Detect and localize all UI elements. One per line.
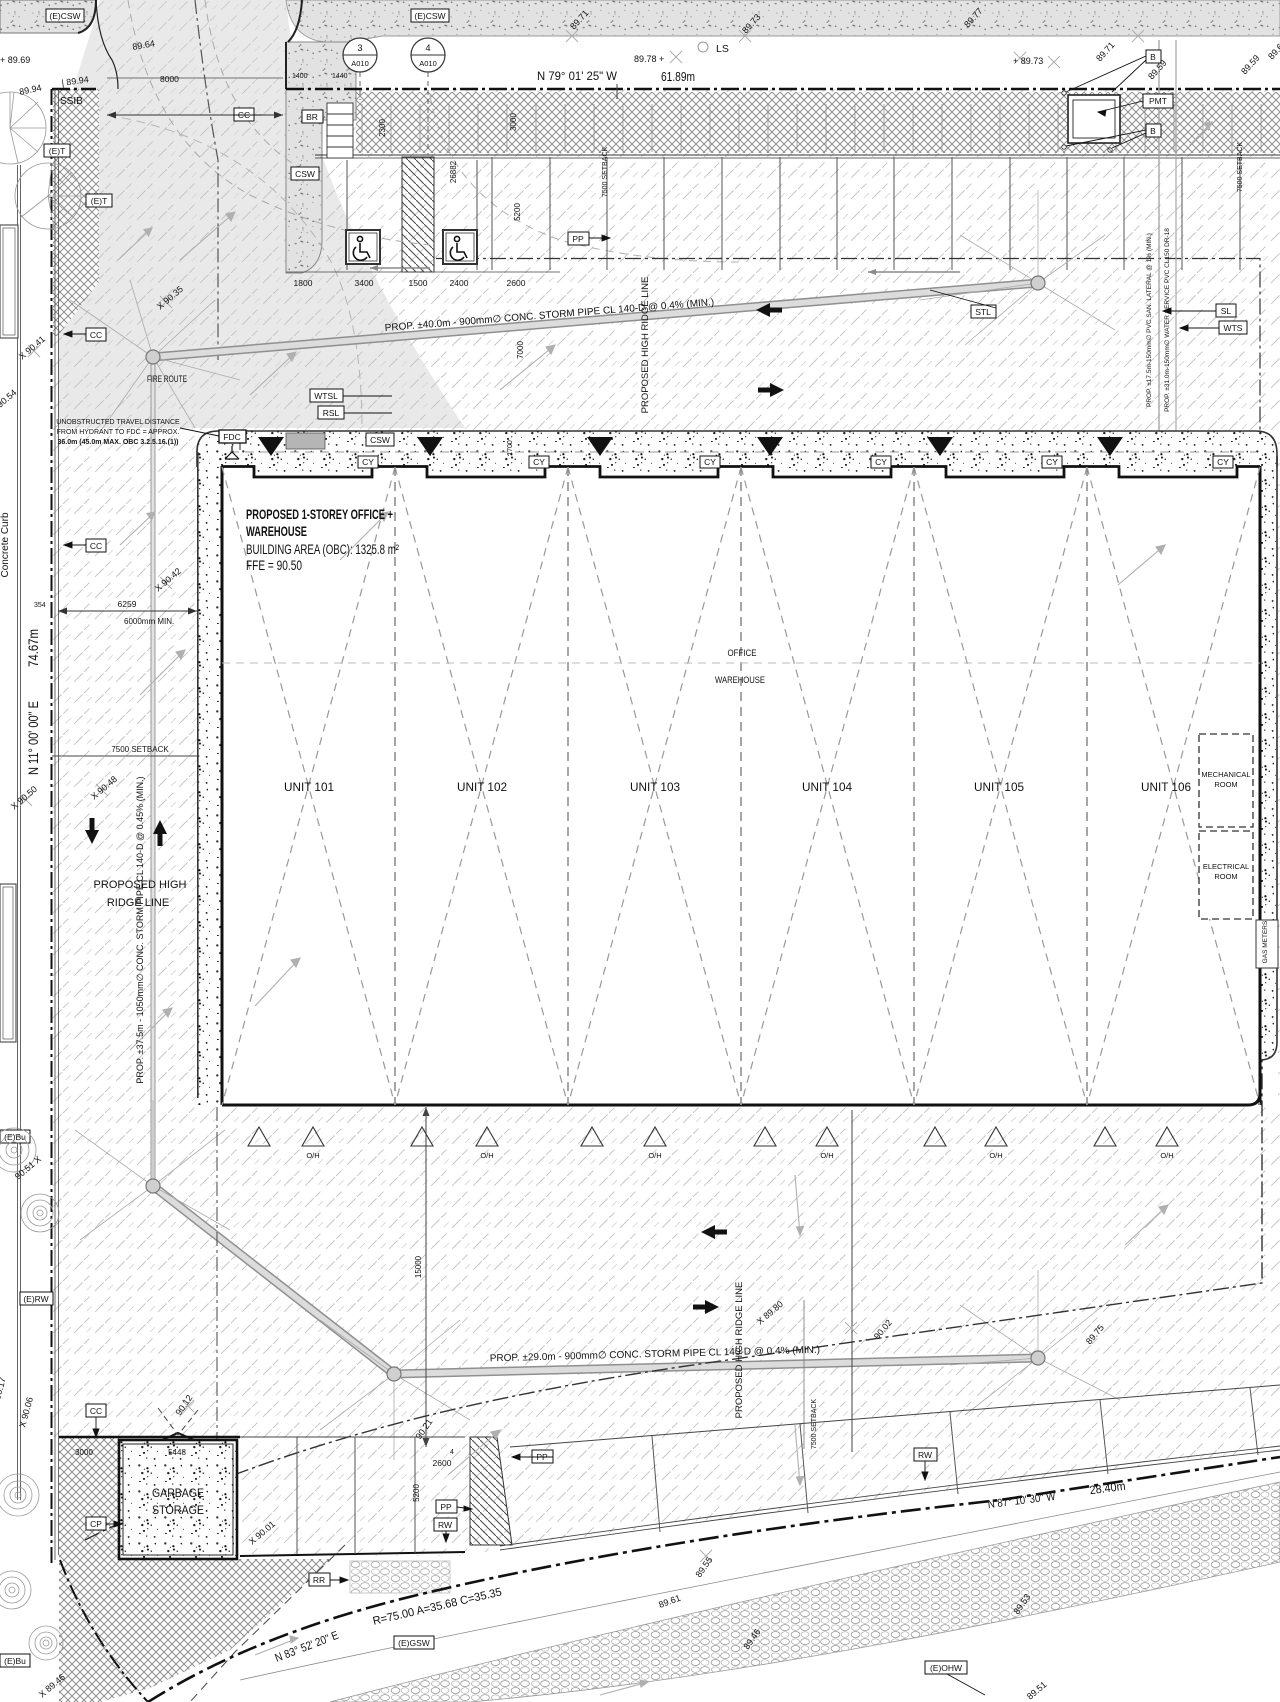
svg-text:1440: 1440 bbox=[332, 73, 348, 80]
svg-text:UNOBSTRUCTED TRAVEL DISTANCE: UNOBSTRUCTED TRAVEL DISTANCE bbox=[56, 419, 180, 426]
svg-text:STORAGE: STORAGE bbox=[152, 1503, 204, 1517]
svg-text:N 11° 00' 00" E: N 11° 00' 00" E bbox=[26, 701, 41, 775]
svg-text:CY: CY bbox=[875, 457, 887, 467]
svg-text:CSW: CSW bbox=[370, 435, 390, 445]
svg-text:3000: 3000 bbox=[509, 113, 518, 131]
svg-text:6259: 6259 bbox=[118, 599, 137, 609]
svg-text:CY: CY bbox=[1046, 457, 1058, 467]
svg-text:5200: 5200 bbox=[513, 203, 522, 221]
svg-text:3: 3 bbox=[357, 43, 362, 53]
svg-text:(E)T: (E)T bbox=[91, 196, 108, 206]
svg-text:RSL: RSL bbox=[323, 408, 340, 418]
svg-text:7500 SETBACK: 7500 SETBACK bbox=[811, 1399, 818, 1450]
svg-text:PROPOSED HIGH: PROPOSED HIGH bbox=[94, 879, 187, 891]
svg-text:SSIB: SSIB bbox=[60, 96, 83, 107]
svg-text:FROM HYDRANT TO FDC = APPROX.: FROM HYDRANT TO FDC = APPROX. bbox=[57, 429, 180, 436]
svg-text:26882: 26882 bbox=[449, 160, 458, 183]
svg-text:(E)T: (E)T bbox=[49, 146, 66, 156]
svg-text:1700: 1700 bbox=[507, 440, 514, 456]
svg-text:15000: 15000 bbox=[414, 1255, 423, 1278]
svg-text:B: B bbox=[1150, 52, 1156, 62]
svg-text:PROP. ±31.0m-150mm∅ WATER SER: PROP. ±31.0m-150mm∅ WATER SERVICE PVC CL… bbox=[1164, 228, 1171, 412]
svg-text:BUILDING AREA (OBC): 1325.8 m²: BUILDING AREA (OBC): 1325.8 m² bbox=[246, 542, 399, 557]
svg-text:6000mm MIN.: 6000mm MIN. bbox=[124, 617, 174, 626]
svg-text:7500 SETBACK: 7500 SETBACK bbox=[602, 147, 609, 198]
svg-text:STL: STL bbox=[975, 307, 991, 317]
svg-text:CC: CC bbox=[90, 1406, 102, 1416]
svg-text:CP: CP bbox=[90, 1519, 102, 1529]
svg-text:CY: CY bbox=[362, 457, 374, 467]
svg-text:A010: A010 bbox=[351, 59, 369, 68]
svg-text:RW: RW bbox=[438, 1520, 452, 1530]
svg-text:O/H: O/H bbox=[989, 1151, 1002, 1160]
svg-text:WAREHOUSE: WAREHOUSE bbox=[246, 523, 307, 539]
svg-text:CC: CC bbox=[90, 541, 102, 551]
svg-text:PMT: PMT bbox=[1149, 96, 1167, 106]
svg-text:1800: 1800 bbox=[294, 278, 313, 288]
svg-text:2600: 2600 bbox=[433, 1458, 452, 1468]
svg-text:O/H: O/H bbox=[480, 1151, 493, 1160]
svg-text:UNIT 101: UNIT 101 bbox=[284, 780, 334, 794]
svg-text:FIRE ROUTE: FIRE ROUTE bbox=[147, 374, 187, 384]
svg-text:5200: 5200 bbox=[412, 1484, 421, 1502]
svg-text:3400: 3400 bbox=[355, 278, 374, 288]
svg-text:(E)GSW: (E)GSW bbox=[398, 1638, 430, 1648]
svg-text:CY: CY bbox=[704, 457, 716, 467]
svg-text:7500 SETBACK: 7500 SETBACK bbox=[1237, 142, 1244, 193]
svg-text:CY: CY bbox=[1217, 457, 1229, 467]
svg-text:(E)CSW: (E)CSW bbox=[414, 11, 445, 21]
svg-text:OFFICE: OFFICE bbox=[728, 648, 757, 659]
svg-text:PP: PP bbox=[572, 234, 584, 244]
svg-text:5448: 5448 bbox=[168, 1448, 186, 1457]
svg-text:ELECTRICAL: ELECTRICAL bbox=[1203, 862, 1249, 871]
svg-text:UNIT 102: UNIT 102 bbox=[457, 780, 507, 794]
svg-text:(E)Bu: (E)Bu bbox=[4, 1132, 26, 1142]
svg-text:ROOM: ROOM bbox=[1214, 872, 1237, 881]
svg-text:PP: PP bbox=[440, 1502, 452, 1512]
svg-text:GAS METERS: GAS METERS bbox=[1262, 920, 1269, 963]
svg-text:O/H: O/H bbox=[648, 1151, 661, 1160]
svg-text:(E)CSW: (E)CSW bbox=[49, 11, 80, 21]
svg-text:UNIT 103: UNIT 103 bbox=[630, 780, 680, 794]
svg-text:CY: CY bbox=[533, 457, 545, 467]
svg-text:PROPOSED HIGH RIDGE LINE: PROPOSED HIGH RIDGE LINE bbox=[640, 277, 651, 414]
svg-text:CC: CC bbox=[90, 330, 102, 340]
svg-text:WAREHOUSE: WAREHOUSE bbox=[715, 675, 765, 686]
svg-text:CSW: CSW bbox=[295, 169, 315, 179]
svg-text:BR: BR bbox=[306, 112, 318, 122]
svg-text:RR: RR bbox=[313, 1575, 325, 1585]
svg-text:WTSL: WTSL bbox=[314, 391, 338, 401]
svg-text:354: 354 bbox=[34, 602, 46, 609]
svg-text:SL: SL bbox=[1221, 306, 1232, 316]
svg-text:89.78 +: 89.78 + bbox=[634, 54, 664, 64]
svg-text:4: 4 bbox=[425, 43, 430, 53]
svg-text:1400: 1400 bbox=[292, 73, 308, 80]
svg-text:1500: 1500 bbox=[409, 278, 428, 288]
svg-text:RW: RW bbox=[918, 1450, 932, 1460]
svg-text:61.89m: 61.89m bbox=[661, 70, 695, 84]
svg-text:PROPOSED 1-STOREY OFFICE +: PROPOSED 1-STOREY OFFICE + bbox=[246, 506, 393, 522]
svg-text:7000: 7000 bbox=[516, 341, 525, 359]
svg-text:PROP. ±17.5m-150mm∅ PVC SAN.: PROP. ±17.5m-150mm∅ PVC SAN. LATERAL @ 1… bbox=[1146, 233, 1153, 407]
svg-text:2400: 2400 bbox=[450, 278, 469, 288]
svg-text:74.67m: 74.67m bbox=[26, 629, 41, 667]
svg-text:O/H: O/H bbox=[306, 1151, 319, 1160]
svg-text:RIDGE LINE: RIDGE LINE bbox=[107, 897, 169, 909]
svg-text:N 79° 01' 25" W: N 79° 01' 25" W bbox=[537, 69, 618, 83]
svg-text:(E)Bu: (E)Bu bbox=[4, 1656, 26, 1666]
svg-text:4: 4 bbox=[450, 1449, 454, 1456]
svg-text:PROP. ±37.5m - 1050mm∅ CONC.: PROP. ±37.5m - 1050mm∅ CONC. STORM PIPE … bbox=[135, 776, 145, 1083]
svg-text:2300: 2300 bbox=[378, 119, 387, 137]
svg-text:36.0m (45.0m MAX. OBC 3.2.5.16: 36.0m (45.0m MAX. OBC 3.2.5.16.(1)) bbox=[58, 439, 179, 446]
svg-text:A010: A010 bbox=[419, 59, 437, 68]
svg-text:MECHANICAL: MECHANICAL bbox=[1201, 770, 1250, 779]
svg-text:PROPOSED HIGH RIDGE LINE: PROPOSED HIGH RIDGE LINE bbox=[734, 1282, 745, 1419]
svg-text:3000: 3000 bbox=[75, 1448, 93, 1457]
svg-text:+ 89.69: + 89.69 bbox=[0, 55, 30, 65]
svg-text:+ 89.73: + 89.73 bbox=[1013, 56, 1043, 66]
svg-text:B: B bbox=[1150, 126, 1156, 136]
svg-text:UNIT 105: UNIT 105 bbox=[974, 780, 1024, 794]
svg-text:FFE = 90.50: FFE = 90.50 bbox=[246, 558, 302, 573]
svg-text:7500 SETBACK: 7500 SETBACK bbox=[111, 745, 169, 754]
svg-text:GARBAGE: GARBAGE bbox=[152, 1486, 204, 1500]
svg-text:(E)OHW: (E)OHW bbox=[930, 1663, 962, 1673]
svg-text:Concrete Curb: Concrete Curb bbox=[0, 512, 11, 577]
svg-text:O/H: O/H bbox=[820, 1151, 833, 1160]
svg-text:8000: 8000 bbox=[160, 74, 179, 84]
svg-text:WTS: WTS bbox=[1224, 323, 1243, 333]
svg-text:UNIT 106: UNIT 106 bbox=[1141, 780, 1191, 794]
svg-text:2600: 2600 bbox=[507, 278, 526, 288]
svg-text:LS: LS bbox=[716, 43, 729, 55]
svg-text:O/H: O/H bbox=[1160, 1151, 1173, 1160]
svg-text:UNIT 104: UNIT 104 bbox=[802, 780, 852, 794]
svg-text:ROOM: ROOM bbox=[1214, 780, 1237, 789]
svg-text:FDC: FDC bbox=[223, 432, 240, 442]
svg-text:(E)RW: (E)RW bbox=[23, 1294, 48, 1304]
